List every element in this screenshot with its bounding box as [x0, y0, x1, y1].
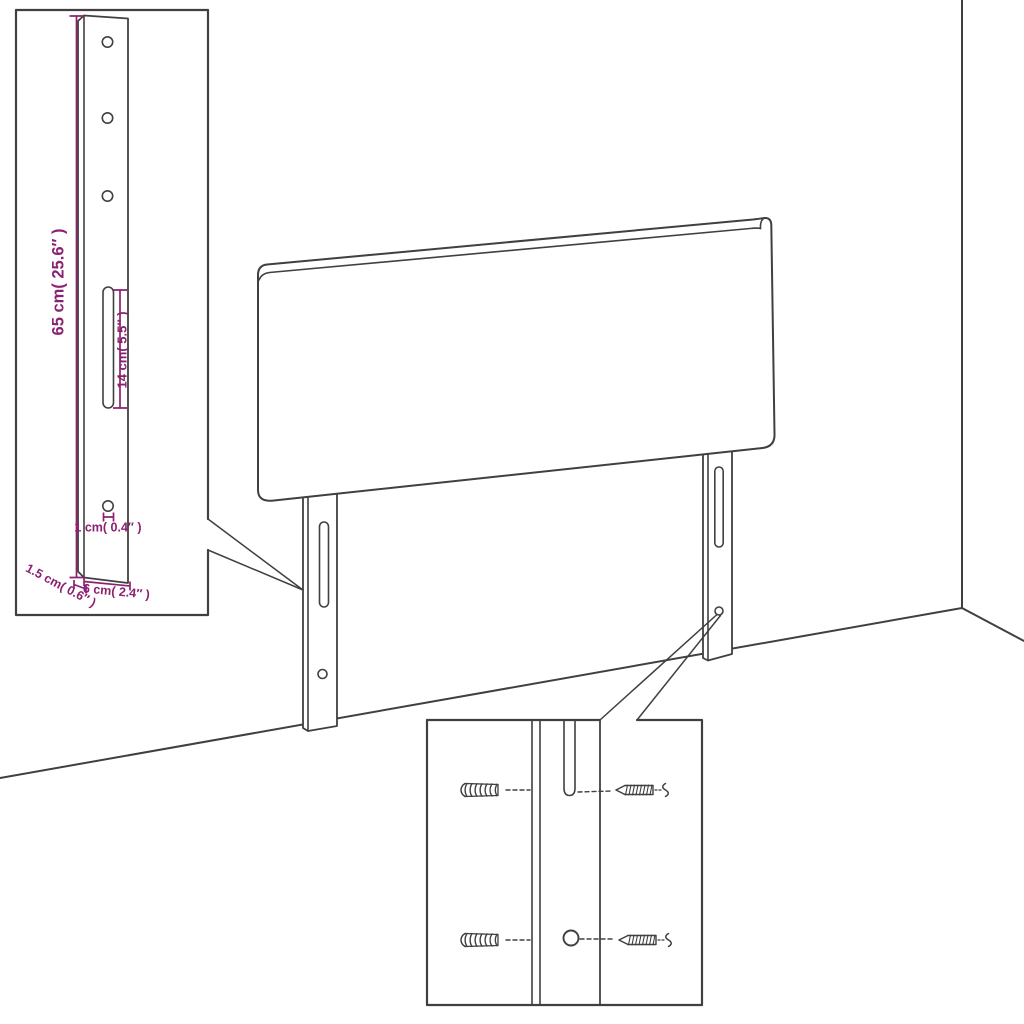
slot-length-dimension-label: 14 cm( 5.5″ ) [115, 311, 130, 388]
left-leg-slot [320, 522, 329, 607]
wall-plug-bottom [461, 934, 498, 947]
mounting-hardware-detail-box [427, 720, 702, 1005]
hole-diameter-dimension-label: 1 cm( 0.4″ ) [74, 521, 141, 535]
hardware-leg-section [532, 720, 600, 1005]
floor-line-left [0, 608, 962, 778]
headboard-left-leg [303, 470, 337, 731]
leg-side-edge-lines [532, 720, 540, 1005]
leg-dimension-detail-box: 65 cm( 25.6″ ) 14 cm( 5.5″ ) 1 cm( 0.4″ … [16, 10, 208, 615]
panel-outline [258, 218, 775, 501]
hardware-leg-hole [564, 931, 579, 946]
right-leg-slot [715, 467, 723, 547]
screw-top [616, 784, 668, 797]
height-dimension-label: 65 cm( 25.6″ ) [50, 229, 68, 336]
hardware-leg-slot [564, 720, 575, 796]
floor-line-right [962, 608, 1024, 641]
alignment-dashed-lines [506, 790, 615, 940]
wall-plug-top [461, 784, 498, 797]
callout-lines-left [208, 519, 303, 590]
headboard-right-leg [703, 442, 732, 661]
diagram-canvas: 65 cm( 25.6″ ) 14 cm( 5.5″ ) 1 cm( 0.4″ … [0, 0, 1024, 1024]
headboard-panel [258, 218, 775, 501]
screw-bottom [619, 934, 671, 947]
headboard-assembly-diagram: 65 cm( 25.6″ ) 14 cm( 5.5″ ) 1 cm( 0.4″ … [0, 0, 1024, 1024]
